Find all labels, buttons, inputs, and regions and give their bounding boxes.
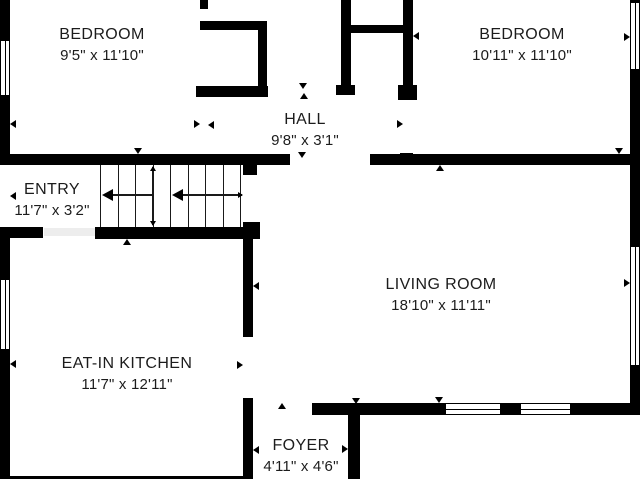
direction-marker — [615, 148, 623, 154]
floor-plan: BEDROOM9'5" x 11'10"BEDROOM10'11" x 11'1… — [0, 0, 640, 479]
room-name: EAT-IN KITCHEN — [62, 353, 193, 374]
wall — [243, 239, 253, 337]
stair-tread — [188, 165, 189, 227]
room-label-hall: HALL9'8" x 3'1" — [271, 109, 339, 151]
stair-arrowhead — [238, 192, 243, 198]
wall — [0, 352, 10, 479]
direction-marker — [624, 33, 630, 41]
direction-marker — [10, 360, 16, 368]
wall — [243, 398, 253, 479]
room-label-bedroom-left: BEDROOM9'5" x 11'10" — [59, 24, 144, 66]
direction-marker — [10, 120, 16, 128]
room-label-foyer: FOYER4'11" x 4'6" — [263, 435, 338, 477]
wall — [243, 162, 257, 175]
direction-marker — [342, 445, 348, 453]
direction-marker — [278, 403, 286, 409]
window — [518, 403, 573, 415]
wall — [0, 227, 43, 238]
window — [0, 38, 10, 98]
direction-marker — [300, 93, 308, 99]
wall — [348, 405, 360, 479]
direction-marker — [123, 239, 131, 245]
wall — [351, 25, 405, 33]
wall — [312, 403, 443, 415]
window — [0, 277, 10, 352]
room-label-living-room: LIVING ROOM18'10" x 11'11" — [385, 274, 496, 316]
room-name: BEDROOM — [472, 24, 572, 45]
wall — [200, 21, 267, 30]
room-dimensions: 10'11" x 11'10" — [472, 45, 572, 66]
wall — [630, 72, 640, 244]
window — [630, 244, 640, 368]
room-label-entry: ENTRY11'7" x 3'2" — [14, 179, 89, 221]
direction-marker — [397, 120, 403, 128]
room-name: BEDROOM — [59, 24, 144, 45]
stair-tread — [205, 165, 206, 227]
room-name: HALL — [271, 109, 339, 130]
wall — [398, 85, 417, 100]
wall — [403, 0, 413, 85]
room-label-bedroom-right: BEDROOM10'11" x 11'10" — [472, 24, 572, 66]
stair-arrowhead — [150, 166, 156, 171]
wall — [503, 403, 518, 415]
stair-arrowhead — [150, 221, 156, 226]
window — [630, 0, 640, 72]
room-name: FOYER — [263, 435, 338, 456]
room-dimensions: 11'7" x 3'2" — [14, 200, 89, 221]
room-dimensions: 18'10" x 11'11" — [385, 295, 496, 316]
room-label-eat-in-kitchen: EAT-IN KITCHEN11'7" x 12'11" — [62, 353, 193, 395]
stair-tread — [223, 165, 224, 227]
direction-marker — [436, 165, 444, 171]
window — [443, 403, 503, 415]
stair-arrowhead — [102, 189, 113, 201]
direction-marker — [237, 361, 243, 369]
wall — [95, 227, 260, 239]
direction-marker — [253, 446, 259, 454]
wall — [243, 222, 260, 239]
wall — [341, 0, 351, 85]
wall — [0, 98, 10, 157]
room-dimensions: 4'11" x 4'6" — [263, 456, 338, 477]
wall — [630, 368, 640, 415]
room-dimensions: 9'5" x 11'10" — [59, 45, 144, 66]
direction-marker — [435, 397, 443, 403]
direction-marker — [624, 279, 630, 287]
room-dimensions: 9'8" x 3'1" — [271, 130, 339, 151]
wall — [200, 0, 208, 9]
direction-marker — [134, 148, 142, 154]
room-name: LIVING ROOM — [385, 274, 496, 295]
wall — [0, 0, 10, 38]
stair-arrow-line — [174, 194, 242, 195]
direction-marker — [208, 121, 214, 129]
wall — [336, 85, 355, 95]
stair-tread — [118, 165, 119, 227]
direction-marker — [253, 282, 259, 290]
room-dimensions: 11'7" x 12'11" — [62, 374, 193, 395]
direction-marker — [299, 83, 307, 89]
wall — [196, 86, 268, 97]
direction-marker — [352, 398, 360, 404]
stair-arrow-line — [152, 167, 153, 225]
door-opening — [44, 228, 95, 236]
direction-marker — [194, 120, 200, 128]
room-name: ENTRY — [14, 179, 89, 200]
stair-arrowhead — [172, 189, 183, 201]
direction-marker — [298, 152, 306, 158]
direction-marker — [413, 32, 419, 40]
stair-tread — [135, 165, 136, 227]
wall — [400, 153, 413, 165]
